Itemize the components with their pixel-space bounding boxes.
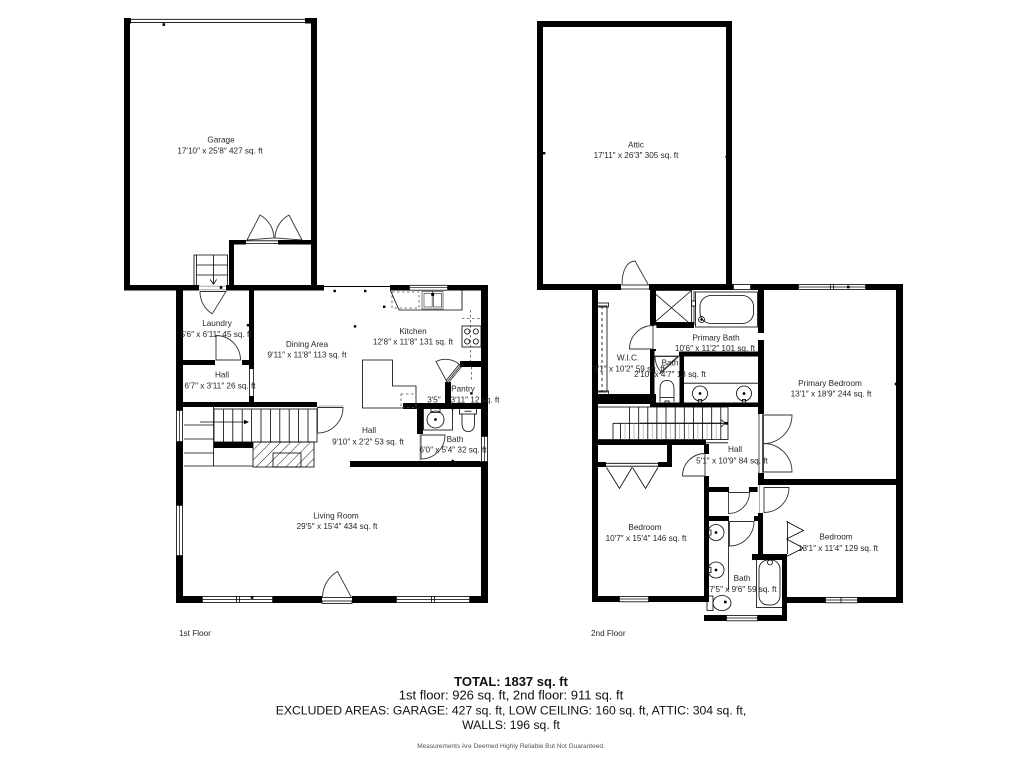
svg-text:2nd Floor: 2nd Floor (591, 629, 626, 638)
svg-text:10′7″ x 15′4″ 146 sq. ft: 10′7″ x 15′4″ 146 sq. ft (606, 534, 688, 543)
svg-text:12′8″ x 11′8″ 131 sq. ft: 12′8″ x 11′8″ 131 sq. ft (373, 338, 454, 347)
svg-text:17′11″ x 26′3″ 305 sq. ft: 17′11″ x 26′3″ 305 sq. ft (594, 151, 679, 160)
svg-text:Hall: Hall (215, 371, 229, 380)
svg-text:10′6″ x 11′2″ 101 sq. ft: 10′6″ x 11′2″ 101 sq. ft (675, 344, 756, 353)
svg-text:Bath: Bath (447, 435, 464, 444)
svg-text:1st Floor: 1st Floor (179, 629, 211, 638)
svg-text:Living Room: Living Room (313, 512, 359, 521)
svg-text:Bedroom: Bedroom (819, 533, 852, 542)
svg-text:9′11″ x 11′8″ 113 sq. ft: 9′11″ x 11′8″ 113 sq. ft (268, 351, 348, 360)
svg-text:29′5″ x 15′4″ 434 sq. ft: 29′5″ x 15′4″ 434 sq. ft (297, 522, 379, 531)
svg-text:13′1″ x 18′9″ 244 sq. ft: 13′1″ x 18′9″ 244 sq. ft (791, 390, 873, 399)
svg-text:Pantry: Pantry (451, 385, 476, 394)
svg-text:3′5″: 3′5″ (427, 396, 441, 405)
svg-text:Bath: Bath (734, 574, 751, 583)
svg-text:3′11″ 12 sq. ft: 3′11″ 12 sq. ft (451, 396, 501, 405)
svg-text:Hall: Hall (728, 445, 742, 454)
svg-text:Garage: Garage (207, 136, 235, 145)
svg-text:Dining Area: Dining Area (286, 340, 329, 349)
svg-text:9′10″ x 2′2″ 53 sq. ft: 9′10″ x 2′2″ 53 sq. ft (332, 438, 404, 447)
svg-text:Kitchen: Kitchen (399, 327, 427, 336)
svg-text:EXCLUDED AREAS: GARAGE: 427 sq: EXCLUDED AREAS: GARAGE: 427 sq. ft, LOW … (276, 704, 747, 718)
svg-text:Bath: Bath (662, 359, 679, 368)
svg-text:6′7″ x 3′11″ 26 sq. ft: 6′7″ x 3′11″ 26 sq. ft (184, 382, 256, 391)
svg-text:5′1″ x 10′9″ 84 sq. ft: 5′1″ x 10′9″ 84 sq. ft (696, 457, 768, 466)
svg-text:13′1″ x 11′4″ 129 sq. ft: 13′1″ x 11′4″ 129 sq. ft (798, 544, 879, 553)
svg-text:7′5″ x 9′6″ 59 sq. ft: 7′5″ x 9′6″ 59 sq. ft (709, 585, 777, 594)
svg-text:5′6″ x 6′11″ 45 sq. ft: 5′6″ x 6′11″ 45 sq. ft (180, 330, 252, 339)
svg-text:1st floor: 926 sq. ft, 2nd flo: 1st floor: 926 sq. ft, 2nd floor: 911 sq… (399, 688, 624, 703)
svg-text:Laundry: Laundry (202, 319, 232, 328)
svg-text:17′10″ x 25′8″ 427 sq. ft: 17′10″ x 25′8″ 427 sq. ft (177, 147, 263, 156)
svg-text:W.I.C.: W.I.C. (617, 354, 639, 363)
svg-text:2′10″ x 4′7″ 13 sq. ft: 2′10″ x 4′7″ 13 sq. ft (634, 370, 706, 379)
svg-text:Attic: Attic (628, 141, 644, 150)
svg-text:Primary Bath: Primary Bath (692, 334, 740, 343)
svg-text:6′0″ x 5′4″ 32 sq. ft: 6′0″ x 5′4″ 32 sq. ft (419, 446, 487, 455)
svg-text:Primary Bedroom: Primary Bedroom (798, 379, 862, 388)
svg-text:Hall: Hall (362, 426, 376, 435)
svg-text:WALLS: 196 sq. ft: WALLS: 196 sq. ft (462, 718, 560, 732)
svg-text:Measurements Are Deemed Highly: Measurements Are Deemed Highly Reliable … (417, 743, 605, 750)
svg-text:Bedroom: Bedroom (628, 523, 661, 532)
